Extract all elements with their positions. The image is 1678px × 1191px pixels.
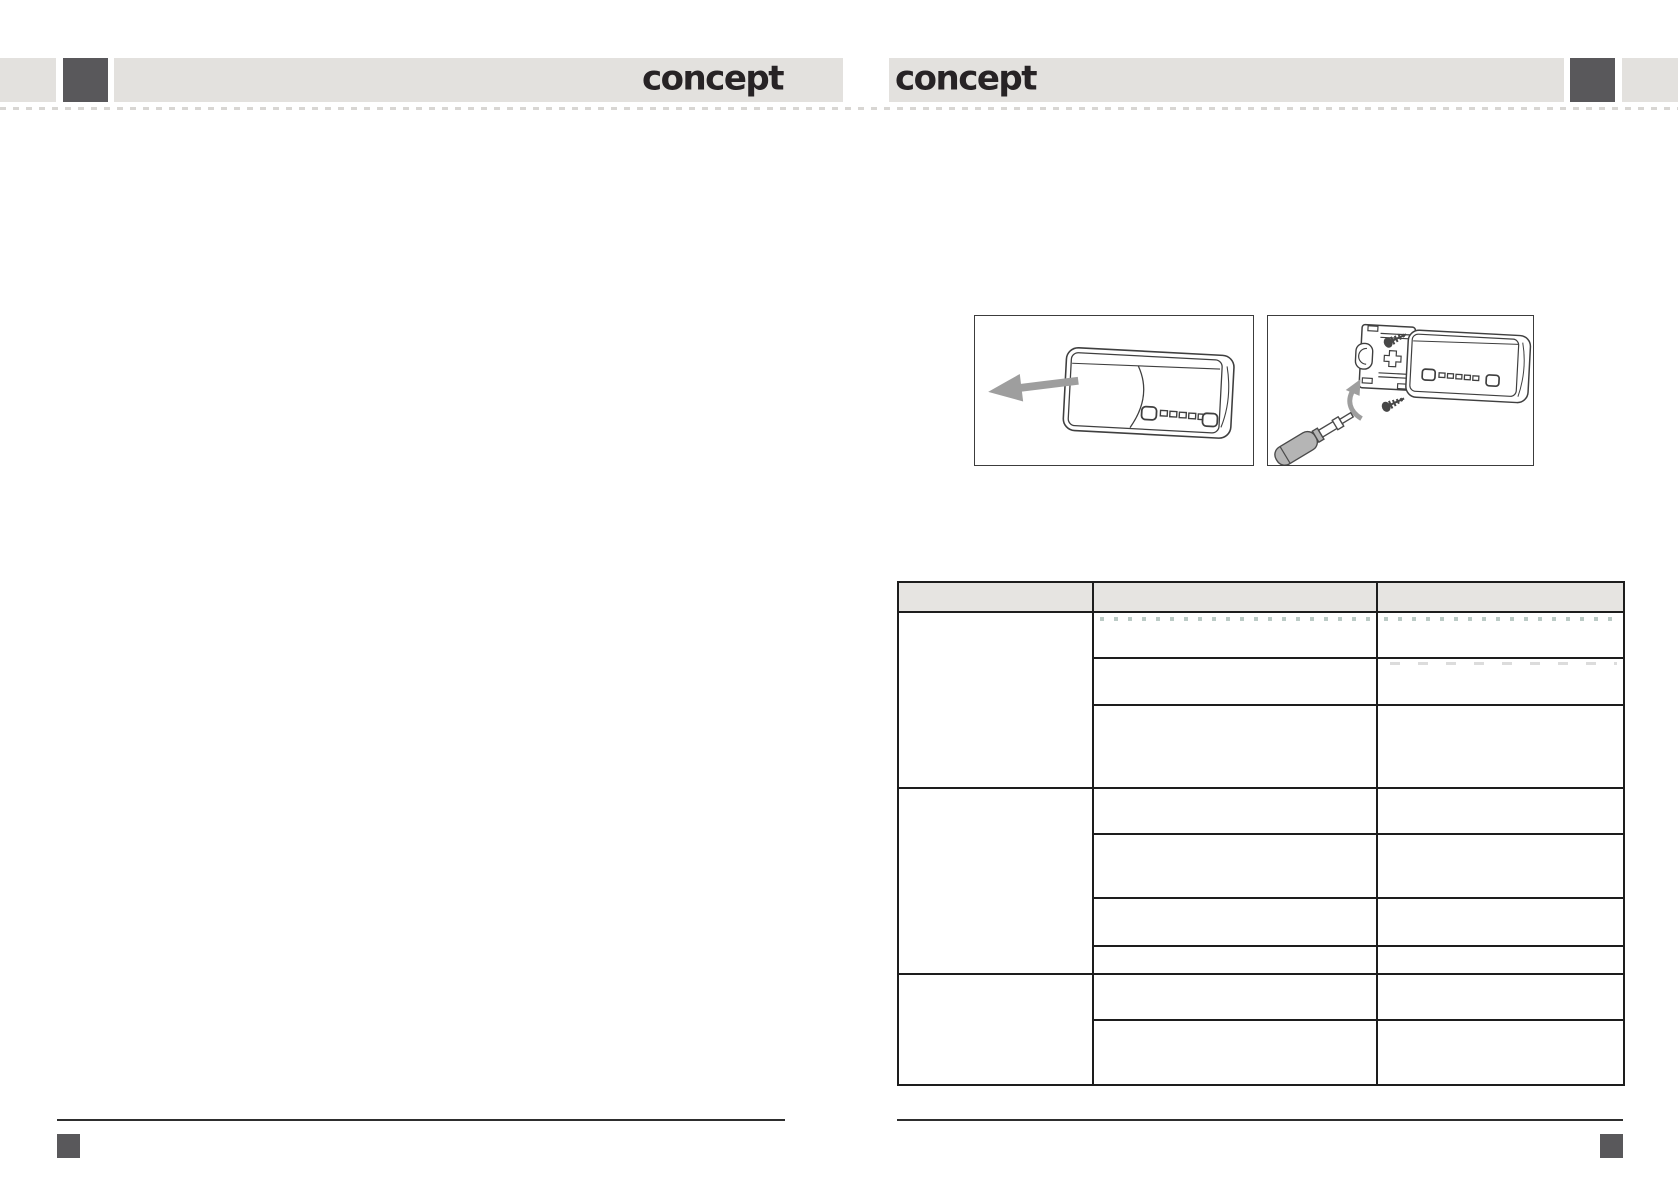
troubleshooting-table — [897, 581, 1625, 1086]
table-cell — [1377, 612, 1624, 658]
car-stereo-icon — [1405, 330, 1531, 403]
table-header-cell — [1377, 582, 1624, 612]
brand-logo-right: concept — [895, 62, 1036, 96]
table-cell — [1377, 946, 1624, 974]
unit-removal-illustration — [975, 316, 1253, 465]
table-cell — [1377, 788, 1624, 834]
table-cell — [1377, 658, 1624, 705]
table-cell — [1093, 612, 1377, 658]
screwdriver-icon — [1272, 406, 1357, 465]
header-bar-right-page: concept — [889, 58, 1564, 102]
table-header-row — [898, 582, 1624, 612]
screw-icon — [1381, 394, 1406, 412]
table-cell — [1377, 834, 1624, 898]
figure-sleeve-mounting — [1267, 315, 1534, 466]
table-row — [898, 612, 1624, 658]
table-group-cell — [898, 788, 1093, 974]
table-row — [898, 788, 1624, 834]
footer-page-marker-right — [1600, 1134, 1623, 1158]
table-cell — [1377, 898, 1624, 946]
header-bar-left-page: concept — [114, 58, 843, 102]
table-group-cell — [898, 974, 1093, 1085]
table-cell — [1377, 974, 1624, 1020]
header-accent-square-left — [63, 58, 108, 102]
footer-page-marker-left — [57, 1134, 80, 1158]
table-cell — [1377, 1020, 1624, 1085]
table-header-cell — [1093, 582, 1377, 612]
header-bar-left-edge — [0, 58, 56, 102]
table-cell — [1093, 658, 1377, 705]
curved-arrow-icon — [1346, 379, 1362, 418]
sleeve-mounting-illustration — [1268, 316, 1533, 465]
table-cell — [1093, 705, 1377, 788]
table-group-cell — [898, 612, 1093, 788]
table-cell — [1093, 788, 1377, 834]
table-cell — [1093, 898, 1377, 946]
table-cell — [1093, 1020, 1377, 1085]
table-header-cell — [898, 582, 1093, 612]
table-row — [898, 974, 1624, 1020]
brand-logo-left: concept — [642, 62, 783, 96]
table-cell — [1093, 946, 1377, 974]
figure-unit-removal — [974, 315, 1254, 466]
table-cell — [1093, 834, 1377, 898]
table-cell — [1093, 974, 1377, 1020]
footer-rule-left-page — [57, 1119, 785, 1121]
header-accent-square-right — [1570, 58, 1615, 102]
header-bar-right-edge — [1622, 58, 1678, 102]
car-stereo-icon — [1063, 347, 1235, 439]
perforation-dashed-line — [0, 107, 1678, 110]
manual-spread: concept concept — [0, 0, 1678, 1191]
table-cell — [1377, 705, 1624, 788]
footer-rule-right-page — [897, 1119, 1623, 1121]
